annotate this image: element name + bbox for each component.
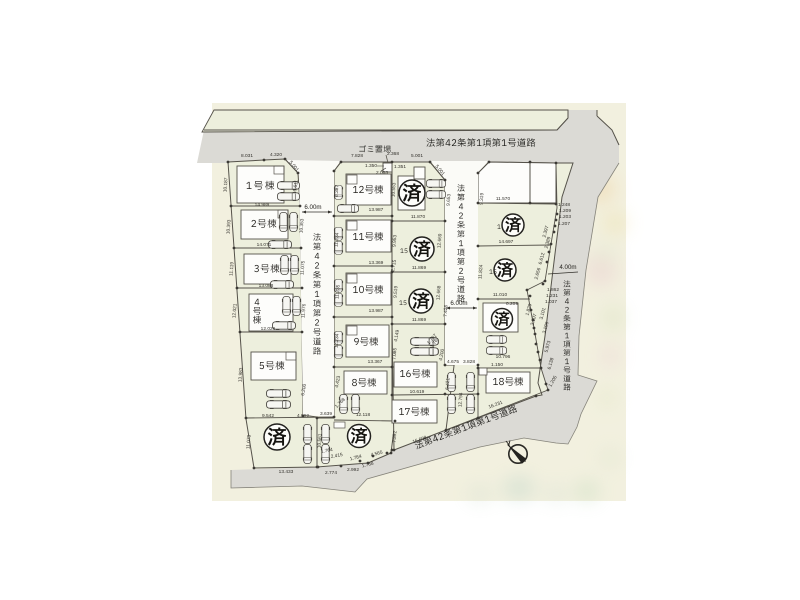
svg-text:1.351: 1.351 (394, 164, 406, 170)
svg-text:10.553: 10.553 (390, 182, 397, 197)
svg-text:1.231: 1.231 (546, 293, 558, 299)
svg-text:0.209: 0.209 (506, 301, 518, 307)
svg-text:12.118: 12.118 (356, 412, 371, 418)
svg-text:6.421: 6.421 (445, 377, 452, 390)
svg-text:14.071: 14.071 (257, 242, 272, 248)
svg-text:1.209: 1.209 (559, 208, 571, 214)
svg-text:12.021: 12.021 (231, 303, 238, 318)
svg-text:4.675: 4.675 (447, 359, 459, 365)
svg-text:8.031: 8.031 (241, 153, 253, 159)
svg-text:12.668: 12.668 (435, 285, 442, 300)
svg-text:13.369: 13.369 (369, 260, 384, 266)
svg-text:13.983: 13.983 (237, 367, 244, 382)
svg-text:7.085: 7.085 (392, 347, 399, 360)
svg-text:3.828: 3.828 (463, 359, 475, 365)
svg-text:2.368: 2.368 (387, 151, 399, 157)
svg-text:11.119: 11.119 (229, 261, 236, 276)
svg-text:13.987: 13.987 (369, 207, 384, 213)
svg-text:13.433: 13.433 (279, 469, 294, 475)
svg-text:11.824: 11.824 (478, 264, 485, 279)
svg-text:9.653: 9.653 (446, 193, 453, 206)
svg-text:4.320: 4.320 (270, 152, 282, 158)
svg-text:7.426: 7.426 (443, 304, 450, 317)
svg-text:3.639: 3.639 (320, 411, 332, 417)
svg-text:10.561: 10.561 (316, 433, 323, 448)
svg-text:13.987: 13.987 (369, 308, 384, 314)
svg-text:2.774: 2.774 (325, 470, 337, 476)
svg-text:11.234: 11.234 (334, 333, 341, 348)
svg-text:6.00m: 6.00m (450, 300, 467, 307)
svg-text:11.869: 11.869 (412, 317, 427, 323)
svg-text:11.235: 11.235 (335, 284, 342, 299)
svg-text:11.234: 11.234 (334, 232, 341, 247)
svg-text:1.350: 1.350 (365, 163, 377, 169)
svg-text:11.869: 11.869 (412, 265, 427, 271)
svg-text:1.248: 1.248 (558, 202, 570, 208)
svg-text:13.088: 13.088 (259, 283, 274, 289)
svg-text:9.953: 9.953 (392, 234, 399, 247)
svg-text:9.542: 9.542 (262, 413, 274, 419)
svg-text:1.203: 1.203 (559, 214, 571, 220)
svg-text:11.570: 11.570 (496, 196, 511, 202)
svg-text:5.001: 5.001 (411, 153, 423, 159)
svg-text:8.387: 8.387 (334, 184, 341, 197)
svg-text:2.992: 2.992 (347, 467, 359, 473)
svg-text:1.037: 1.037 (545, 299, 557, 305)
svg-text:4.00m: 4.00m (559, 264, 576, 271)
svg-text:7.828: 7.828 (351, 153, 363, 159)
svg-text:11.073: 11.073 (246, 434, 253, 449)
svg-text:11.075: 11.075 (300, 260, 307, 275)
svg-text:10.187: 10.187 (222, 177, 229, 192)
svg-text:1.150: 1.150 (491, 362, 503, 368)
svg-text:6.00m: 6.00m (304, 204, 321, 211)
svg-text:9.519: 9.519 (393, 285, 400, 298)
svg-text:10.796: 10.796 (496, 354, 511, 360)
svg-text:10.393: 10.393 (225, 219, 232, 234)
svg-text:10.353: 10.353 (298, 218, 305, 233)
svg-text:12.026: 12.026 (261, 326, 276, 332)
svg-text:11.870: 11.870 (411, 214, 426, 220)
svg-text:12.669: 12.669 (436, 233, 443, 248)
svg-text:9.319: 9.319 (479, 192, 486, 205)
svg-text:12.794: 12.794 (457, 392, 464, 407)
svg-text:14.989: 14.989 (255, 202, 270, 208)
svg-text:11.010: 11.010 (493, 292, 508, 298)
svg-text:11.976: 11.976 (301, 303, 308, 318)
svg-text:1.862: 1.862 (547, 287, 559, 293)
svg-text:7.392: 7.392 (392, 430, 399, 443)
svg-text:1.207: 1.207 (558, 221, 570, 227)
svg-text:13.367: 13.367 (368, 359, 383, 365)
svg-text:10.619: 10.619 (410, 389, 425, 395)
svg-text:14.697: 14.697 (499, 239, 514, 245)
svg-text:2.003: 2.003 (376, 170, 388, 176)
